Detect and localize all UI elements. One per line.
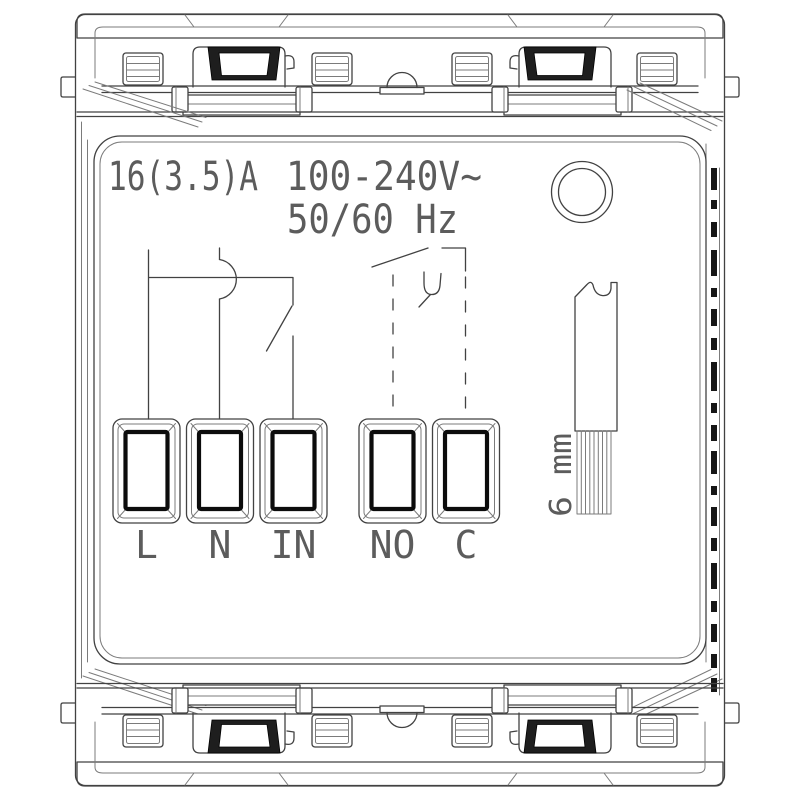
center-plate (380, 706, 424, 713)
clip-foot (616, 688, 632, 713)
rating-frequency-label: 50/60 Hz (287, 197, 458, 243)
strip-length-label: 6 mm (544, 433, 579, 517)
terminal-label: N (209, 523, 232, 567)
ribbed-tab (637, 53, 677, 85)
clip-foot (172, 87, 188, 112)
page-background (0, 0, 800, 800)
relay-module-technical-drawing: 16(3.5)A 100-240V~ 50/60 Hz L N (0, 0, 800, 800)
rating-current-label: 16(3.5)A (108, 154, 258, 200)
center-plate (380, 88, 424, 95)
ribbed-tab (452, 715, 492, 747)
clip-foot (492, 87, 508, 112)
clip-base-plate (504, 685, 621, 705)
clip-foot (296, 688, 312, 713)
ribbed-tab (312, 53, 352, 85)
rating-voltage-label: 100-240V~ (286, 154, 482, 200)
terminal-label: IN (271, 523, 317, 567)
ribbed-tab (312, 715, 352, 747)
ribbed-tab (637, 715, 677, 747)
ribbed-tab (123, 53, 163, 85)
clip-base-plate (504, 95, 621, 115)
clip-foot (172, 688, 188, 713)
terminal-label: C (455, 523, 478, 567)
clip-foot (296, 87, 312, 112)
ribbed-tab (452, 53, 492, 85)
terminal-label: L (135, 523, 158, 567)
clip-foot (492, 688, 508, 713)
terminal-label: NO (370, 523, 416, 567)
ribbed-tab (123, 715, 163, 747)
